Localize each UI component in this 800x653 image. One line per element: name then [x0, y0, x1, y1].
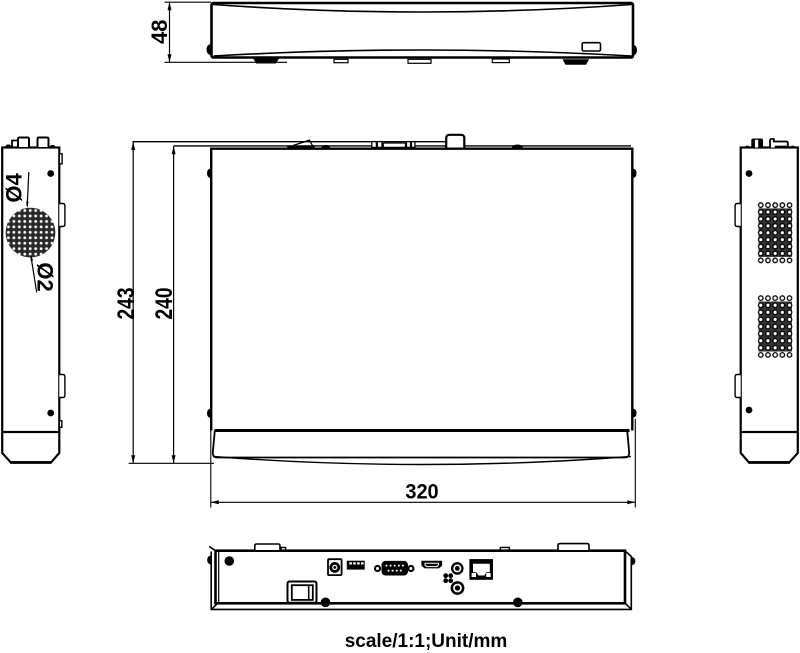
svg-text:Ø2: Ø2 — [33, 262, 58, 291]
svg-text:240: 240 — [150, 287, 178, 319]
svg-text:scale/1:1;Unit/mm: scale/1:1;Unit/mm — [345, 631, 508, 652]
svg-text:Ø4: Ø4 — [1, 173, 26, 203]
svg-text:48: 48 — [147, 20, 172, 44]
svg-text:243: 243 — [112, 287, 140, 319]
svg-text:320: 320 — [405, 480, 438, 504]
